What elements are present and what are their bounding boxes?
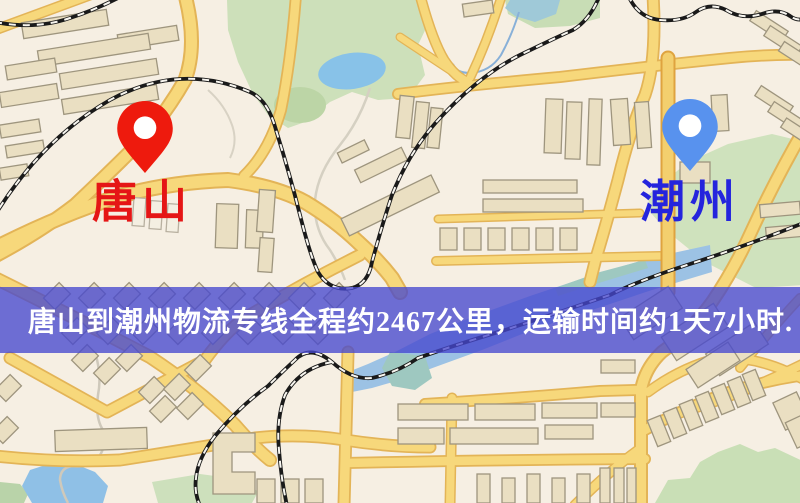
map-image <box>0 0 800 503</box>
origin-city-label: 唐山 <box>92 180 192 225</box>
destination-pin-glyph <box>662 99 718 171</box>
origin-pin-glyph <box>117 101 173 173</box>
origin-pin-icon[interactable] <box>117 101 173 173</box>
destination-city-label: 潮州 <box>640 180 740 225</box>
map-screenshot: 唐山 潮州 唐山到潮州物流专线全程约2467公里，运输时间约1天7小时. <box>0 0 800 503</box>
destination-pin-icon[interactable] <box>662 99 718 171</box>
route-info-banner: 唐山到潮州物流专线全程约2467公里，运输时间约1天7小时. <box>0 287 800 353</box>
route-info-text: 唐山到潮州物流专线全程约2467公里，运输时间约1天7小时. <box>28 300 793 340</box>
